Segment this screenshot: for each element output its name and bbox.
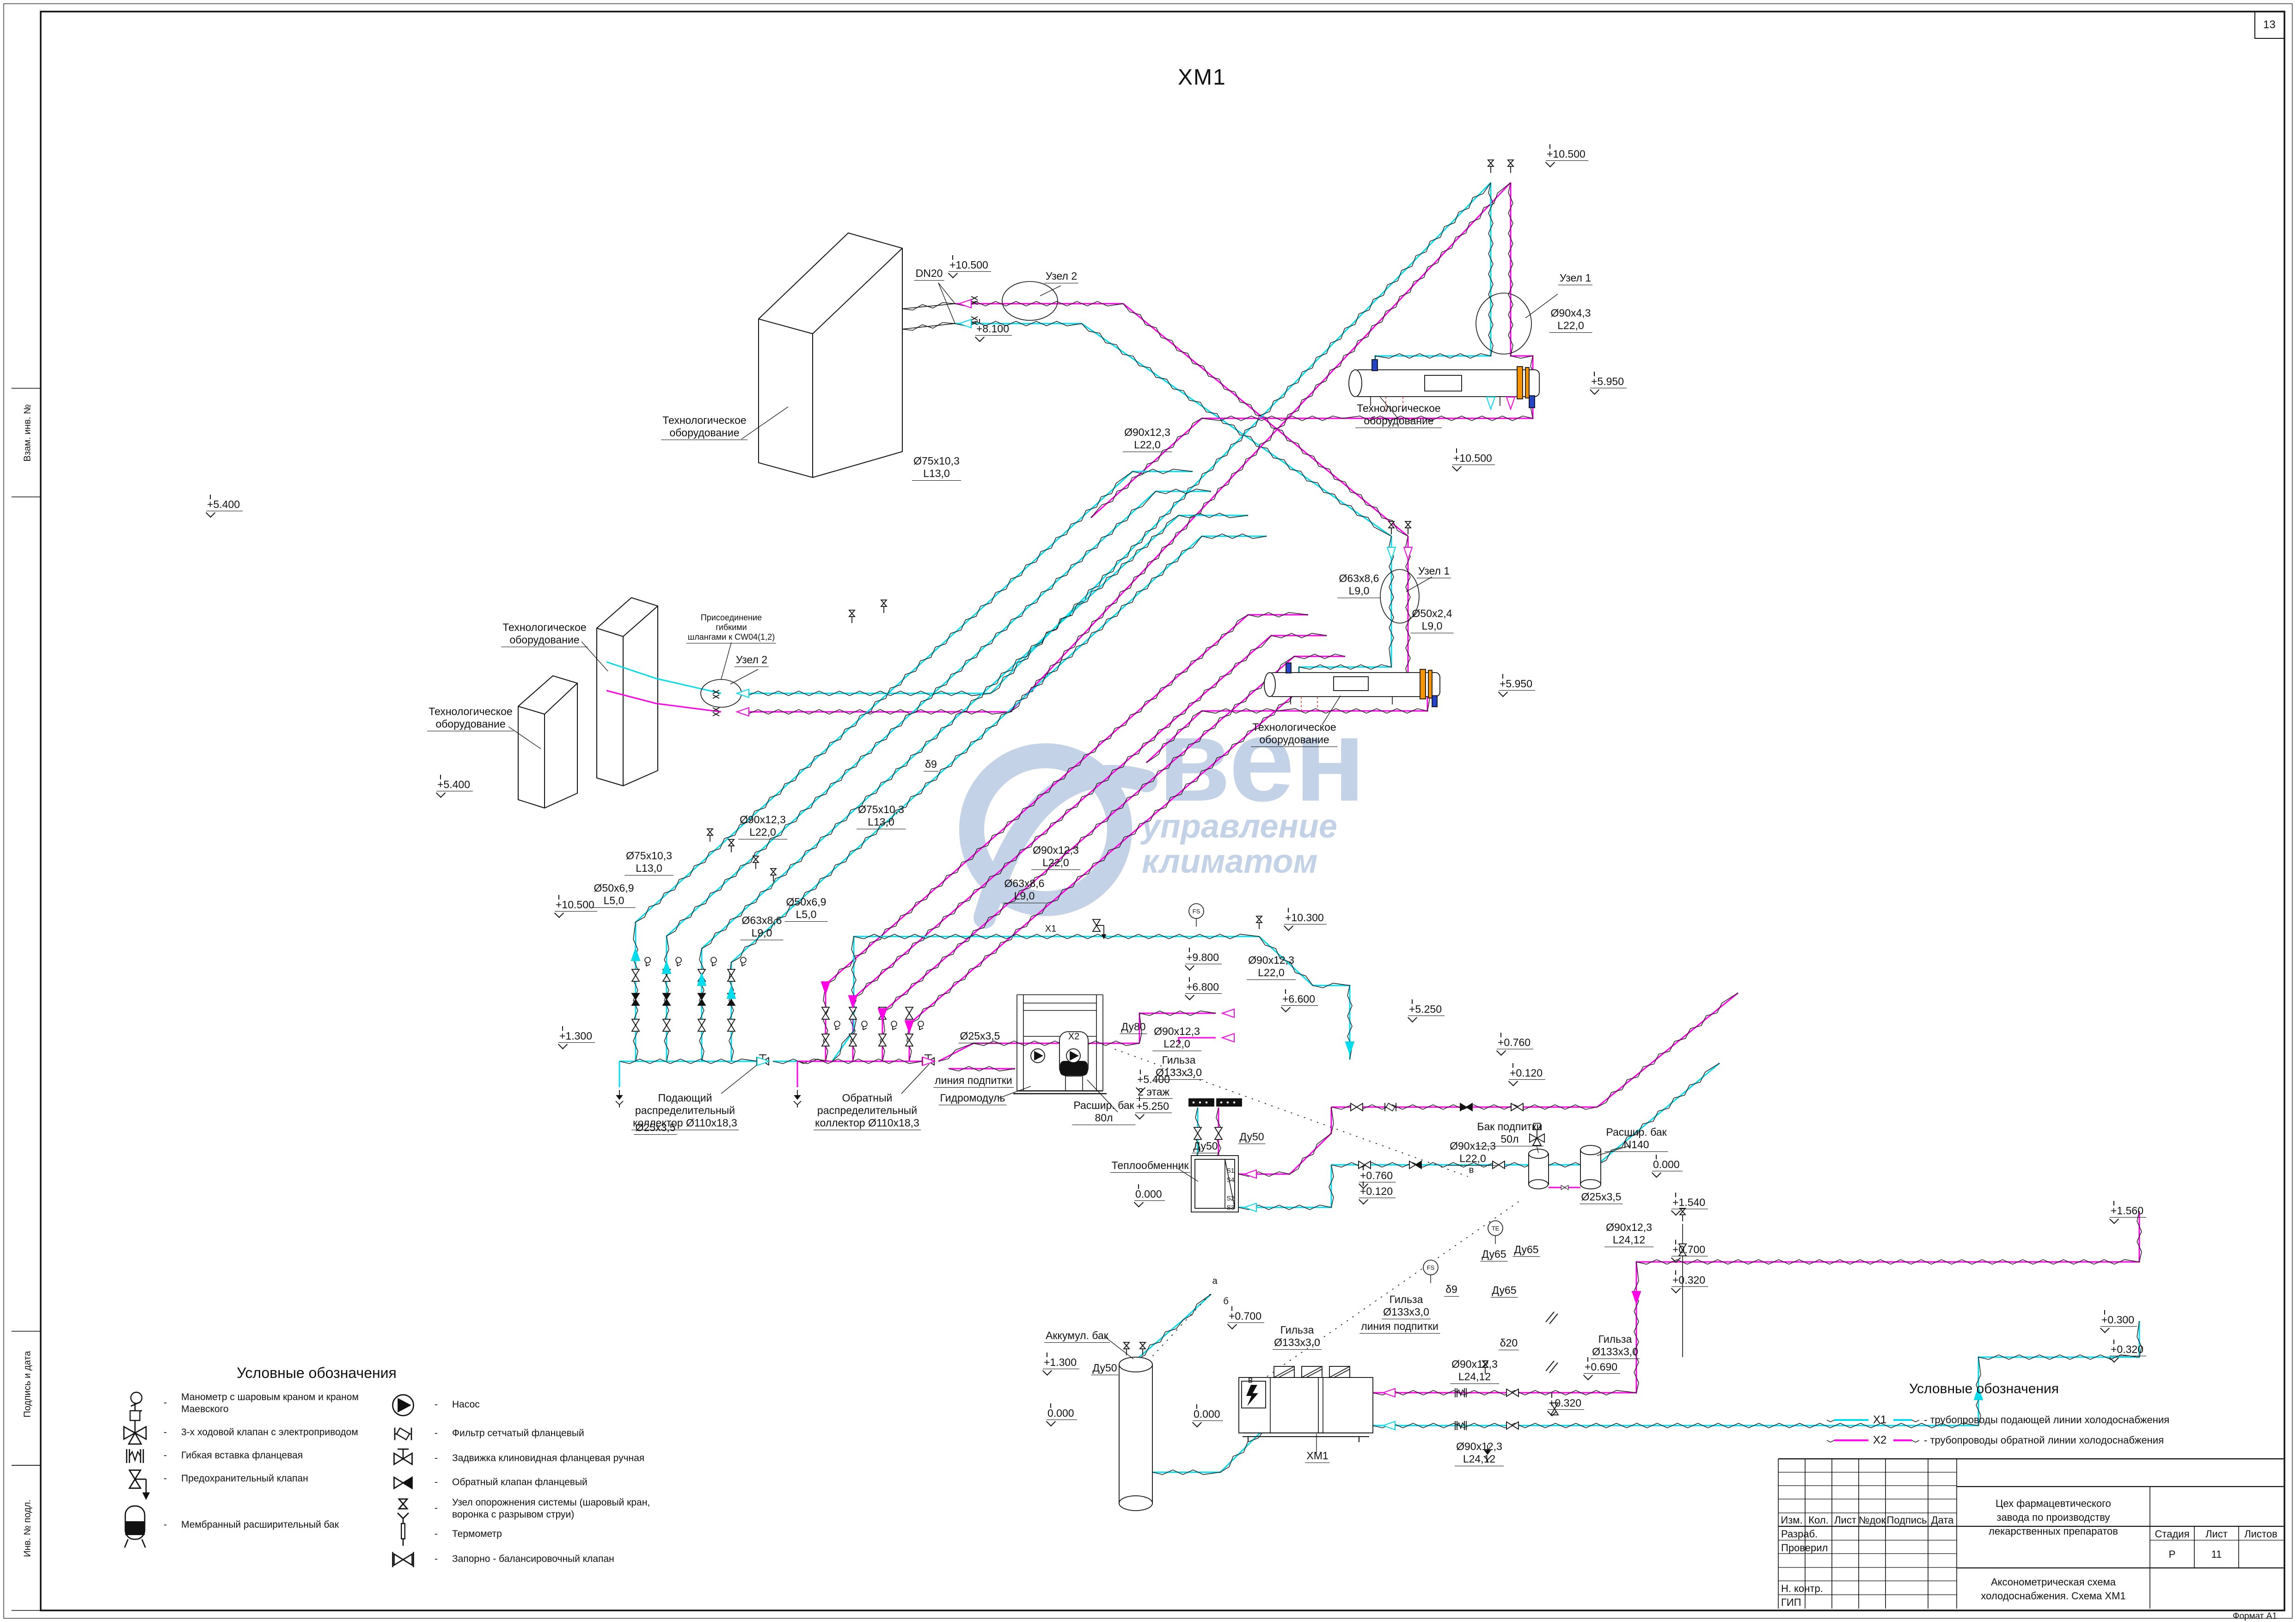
- callout-line: Технологическое: [502, 621, 586, 634]
- tb-project-line: Цех фармацевтического: [1996, 1498, 2111, 1510]
- callout-label: Гидромодуль: [939, 1092, 1007, 1105]
- legend-item-line: Обратный клапан фланцевый: [452, 1476, 588, 1488]
- elevation-mark: +0.300: [2100, 1314, 2137, 1327]
- callout-line: гибкими: [688, 623, 775, 632]
- pump-symbol: [393, 1395, 414, 1416]
- flex-symbol: [127, 1449, 143, 1463]
- elevation-mark: +0.760: [1359, 1169, 1396, 1182]
- callout-line: N140: [1606, 1138, 1666, 1151]
- tb-doc-line: холодоснабжения. Схема ХМ1: [1981, 1590, 2125, 1602]
- legend-item-line: Предохранительный клапан: [181, 1473, 308, 1485]
- elevation-mark: +0.320: [1548, 1397, 1584, 1410]
- callout-line: Подающий: [633, 1092, 737, 1104]
- legend-item-label: Обратный клапан фланцевый: [452, 1476, 588, 1488]
- legend-left-title: Условные обозначения: [237, 1365, 397, 1382]
- legend-item-line: Мембранный расширительный бак: [181, 1519, 339, 1531]
- callout-label: Подающийраспределительныйколлектор Ø110x…: [631, 1092, 739, 1130]
- gate-symbol: [394, 1449, 412, 1464]
- elevation-mark: +5.950: [1590, 375, 1627, 388]
- callout-label: Бак подпитки50л: [1476, 1120, 1543, 1146]
- callout-line: Бак подпитки: [1477, 1120, 1542, 1133]
- callout-line: Ø25x3,5: [1581, 1191, 1622, 1203]
- callout-line: Гильза: [1592, 1333, 1638, 1346]
- filter-symbol: [395, 1428, 411, 1440]
- callout-line: Узел 1: [1418, 565, 1450, 577]
- elevation-mark: +10.300: [1284, 912, 1327, 924]
- legend-right-title: Условные обозначения: [1909, 1381, 2059, 1397]
- callout-label: Ø90x12,3L22,0: [738, 814, 787, 839]
- legend-dash: -: [164, 1397, 167, 1409]
- thermo-symbol: [401, 1524, 405, 1546]
- callout-line: 80л: [1073, 1112, 1134, 1124]
- callout-line: δ9: [925, 758, 937, 771]
- callout-line: оборудование: [429, 718, 512, 730]
- callout-line: Ду50: [1193, 1140, 1218, 1152]
- callout-label: Ду65: [1512, 1243, 1540, 1257]
- legend-line-tag: X2: [1873, 1434, 1886, 1447]
- callout-label: Расшир. бакN140: [1604, 1126, 1668, 1152]
- callout-line: L22,0: [1551, 319, 1591, 332]
- legend-item-line: 3-х ходовой клапан с электроприводом: [181, 1426, 358, 1438]
- callout-line: L5,0: [594, 894, 634, 907]
- callout-label: Узел 1: [1417, 565, 1451, 578]
- callout-label: Ø25x3,5: [1580, 1191, 1623, 1204]
- callout-label: Технологическоеоборудование: [427, 705, 514, 731]
- pipe-tag: в: [1248, 1375, 1253, 1386]
- legend-line-tag: X1: [1873, 1414, 1886, 1426]
- legend-item-line: Насос: [452, 1399, 480, 1411]
- tb-stage-value: Р: [2169, 1549, 2176, 1561]
- callout-line: δ20: [1500, 1337, 1518, 1349]
- elevation-mark: +5.250: [1408, 1003, 1445, 1016]
- legend-item-label: Фильтр сетчатый фланцевый: [452, 1427, 584, 1439]
- callout-line: оборудование: [1252, 734, 1336, 746]
- tb-col-header: Кол.: [1808, 1514, 1829, 1526]
- callout-line: Ø50x6,9: [786, 896, 827, 908]
- tb-stage-label: Стадия: [2155, 1528, 2190, 1540]
- callout-label: Ø90x4,3L22,0: [1549, 307, 1592, 333]
- legend-item-line: Манометр с шаровым краном и краном: [181, 1391, 359, 1403]
- format-note: Формат А1: [2233, 1611, 2277, 1622]
- callout-line: Ø90x12,3: [1248, 954, 1294, 967]
- callout-line: Узел 2: [736, 654, 767, 666]
- callout-line: распределительный: [815, 1104, 919, 1117]
- bal-symbol: [393, 1552, 414, 1567]
- port-tag: S4: [1226, 1176, 1234, 1183]
- legend-dash: -: [435, 1427, 438, 1439]
- legend-dash: -: [435, 1502, 438, 1514]
- elevation-mark: +0.120: [1509, 1067, 1545, 1080]
- callout-label: линия подпитки: [1359, 1320, 1440, 1334]
- 3way-symbol: [124, 1411, 146, 1444]
- callout-label: δ9: [924, 758, 938, 771]
- callout-line: DN20: [916, 267, 943, 280]
- callout-line: оборудование: [1357, 415, 1440, 427]
- callout-line: коллектор Ø110x18,3: [633, 1117, 737, 1129]
- callout-label: Ду50: [1192, 1140, 1219, 1153]
- elevation-mark: 0.000: [1047, 1407, 1077, 1420]
- callout-line: L9,0: [742, 927, 782, 939]
- tb-doc-line: Аксонометрическая схема: [1991, 1576, 2116, 1588]
- legend-item-label: Узел опорожнения системы (шаровый кран,в…: [452, 1497, 650, 1521]
- callout-label: Ø90x12,3L22,0: [1247, 954, 1296, 980]
- callout-line: оборудование: [502, 634, 586, 646]
- elevation-mark: +8.100: [975, 323, 1012, 336]
- tb-row-label: ГИП: [1781, 1597, 1801, 1609]
- callout-label: Ø90x12,3L22,0: [1123, 426, 1172, 452]
- legend-item-label: Гибкая вставка фланцевая: [181, 1450, 303, 1462]
- pipe-tag: X2: [1068, 1032, 1079, 1042]
- callout-line: оборудование: [662, 427, 746, 439]
- memtank-symbol: [125, 1506, 146, 1548]
- drawing-sheet: венуправлениеклиматом FSTEFS ХМ1 13 Форм…: [0, 0, 2296, 1622]
- callout-line: Технологическое: [429, 705, 512, 718]
- callout-line: Гильза: [1156, 1054, 1202, 1066]
- callout-line: L9,0: [1339, 585, 1379, 597]
- callout-label: Ду80: [1120, 1021, 1147, 1034]
- callout-line: ХМ1: [1306, 1450, 1328, 1462]
- legend-item-line: Термометр: [452, 1528, 502, 1540]
- callout-line: шлангами к CW04(1,2): [688, 632, 775, 642]
- callout-label: Технологическоеоборудование: [501, 621, 588, 647]
- tb-row-label: Н. контр.: [1781, 1583, 1823, 1595]
- elevation-mark: +5.4002 этаж: [1136, 1073, 1173, 1099]
- callout-label: ГильзаØ133x3,0: [1382, 1293, 1431, 1319]
- elevation-mark: +1.540: [1671, 1196, 1708, 1209]
- legend-item-line: Маевского: [181, 1403, 359, 1415]
- callout-label: Узел 2: [735, 654, 769, 667]
- callout-label: ГильзаØ133x3,0: [1273, 1324, 1322, 1350]
- tb-sheet-value: 11: [2211, 1549, 2222, 1561]
- elevation-mark: +6.600: [1281, 993, 1318, 1006]
- elevation-mark: +5.950: [1499, 678, 1535, 691]
- callout-line: L13,0: [626, 862, 672, 875]
- callout-line: Ø75x10,3: [913, 455, 960, 467]
- callout-line: L9,0: [1004, 890, 1045, 902]
- callout-label: Расшир. бак80л: [1072, 1099, 1135, 1125]
- side-strip-label: Инв. № подл.: [23, 1530, 33, 1557]
- callout-line: L24,12: [1451, 1371, 1498, 1383]
- drainunit-symbol: [398, 1499, 409, 1524]
- legend-item-label: Предохранительный клапан: [181, 1473, 308, 1485]
- callout-line: L22,0: [1450, 1152, 1496, 1165]
- callout-line: L22,0: [1248, 967, 1294, 979]
- page-title: ХМ1: [1178, 65, 1226, 90]
- callout-line: Ø25x3,5: [960, 1030, 1000, 1042]
- legend-line-label: - трубопроводы подающей линии холодоснаб…: [1924, 1414, 2169, 1426]
- callout-label: Ø25x3,5: [959, 1030, 1002, 1043]
- pipe-tag: а: [1212, 1276, 1217, 1287]
- pipe-tag: б: [1223, 1297, 1228, 1307]
- callout-label: Технологическоеоборудование: [1355, 402, 1442, 428]
- callout-line: Ø133x3,0: [1383, 1306, 1429, 1318]
- callout-line: Присоединение: [688, 613, 775, 623]
- tb-project-line: лекарственных препаратов: [1989, 1525, 2118, 1537]
- legend-item-line: Запорно - балансировочный клапан: [452, 1553, 614, 1565]
- port-tag: S2: [1226, 1194, 1234, 1202]
- callout-line: Ду65: [1492, 1284, 1516, 1297]
- callout-label: Ду65: [1480, 1248, 1507, 1261]
- legend-item-line: Задвижка клиновидная фланцевая ручная: [452, 1452, 644, 1464]
- legend-item-line: Гибкая вставка фланцевая: [181, 1450, 303, 1462]
- callout-line: Ду65: [1514, 1243, 1538, 1256]
- callout-label: Присоединениегибкимишлангами к CW04(1,2): [686, 613, 776, 643]
- callout-line: Технологическое: [1357, 402, 1440, 415]
- legend-item-label: Мембранный расширительный бак: [181, 1519, 339, 1531]
- elevation-mark: +0.120: [1359, 1185, 1396, 1198]
- side-strip-label: Взам. инв. №: [23, 434, 33, 462]
- elevation-mark: +0.760: [1497, 1036, 1533, 1049]
- callout-line: L22,0: [1124, 439, 1170, 451]
- elevation-mark: +10.500: [1452, 452, 1495, 465]
- callout-line: Ø133x3,0: [1274, 1336, 1320, 1349]
- callout-label: Ø75x10,3L13,0: [625, 850, 673, 875]
- elevation-mark: +1.300: [558, 1030, 595, 1043]
- tb-col-header: Подпись: [1886, 1514, 1927, 1526]
- legend-dash: -: [164, 1450, 167, 1462]
- side-strip-label: Подпись и дата: [23, 1390, 33, 1418]
- callout-label: Технологическоеоборудование: [1251, 721, 1337, 747]
- legend-dash: -: [435, 1476, 438, 1488]
- callout-label: Ø50x6,9L5,0: [785, 896, 828, 922]
- elevation-mark: +1.560: [2110, 1205, 2146, 1218]
- legend-dash: -: [435, 1452, 438, 1464]
- callout-line: линия подпитки: [1361, 1320, 1439, 1333]
- tb-col-header: Изм.: [1781, 1514, 1802, 1526]
- callout-line: Ø90x12,3: [1124, 426, 1170, 439]
- elevation-mark: +0.320: [2110, 1343, 2146, 1356]
- callout-label: Ду50: [1091, 1362, 1118, 1375]
- legend-item-label: Запорно - балансировочный клапан: [452, 1553, 614, 1565]
- elevation-mark: +5.400: [206, 498, 243, 511]
- callout-label: Технологическоеоборудование: [661, 414, 747, 440]
- callout-line: Гильза: [1383, 1293, 1429, 1306]
- callout-line: Расшир. бак: [1606, 1126, 1666, 1138]
- callout-line: Гидромодуль: [940, 1092, 1005, 1104]
- callout-label: Ø63x8,6L9,0: [741, 914, 784, 940]
- legend-dash: -: [435, 1553, 438, 1565]
- callout-line: Ø63x8,6: [1004, 877, 1045, 890]
- callout-line: Ø90x12,3: [1451, 1358, 1498, 1371]
- callout-label: Теплообменник: [1110, 1159, 1190, 1173]
- callout-line: распределительный: [633, 1104, 737, 1117]
- callout-label: Ø90x12,3L24,12: [1455, 1440, 1504, 1466]
- callout-label: Ду50: [1238, 1131, 1265, 1144]
- check-symbol: [394, 1477, 412, 1488]
- tb-row-label: Разраб.: [1781, 1528, 1818, 1540]
- safety-symbol: [129, 1470, 149, 1499]
- callout-line: Ду50: [1239, 1131, 1264, 1143]
- legend-item-label: Насос: [452, 1399, 480, 1411]
- callout-line: Аккумул. бак: [1046, 1329, 1108, 1342]
- callout-label: линия подпитки: [933, 1074, 1014, 1088]
- tb-col-header: №док: [1859, 1514, 1886, 1526]
- callout-line: δ9: [1445, 1283, 1457, 1296]
- port-tag: S3: [1226, 1204, 1234, 1211]
- callout-label: Узел 2: [1044, 270, 1078, 283]
- callout-line: Узел 1: [1560, 272, 1591, 284]
- callout-line: коллектор Ø110x18,3: [815, 1117, 919, 1129]
- callout-line: Ø133x3,0: [1592, 1346, 1638, 1358]
- callout-line: L13,0: [913, 467, 960, 480]
- callout-line: Ø75x10,3: [858, 803, 904, 816]
- elevation-mark: +10.500: [555, 899, 597, 912]
- callout-label: ГильзаØ133x3,0: [1591, 1333, 1640, 1359]
- callout-line: Ø90x12,3: [1033, 844, 1079, 857]
- callout-line: Ду80: [1121, 1021, 1145, 1033]
- callout-line: Ø90x4,3: [1551, 307, 1591, 319]
- callout-line: Ø50x2,4: [1412, 607, 1452, 620]
- callout-label: DN20: [914, 267, 944, 281]
- callout-line: 50л: [1477, 1133, 1542, 1145]
- callout-label: Ду65: [1490, 1284, 1518, 1298]
- callout-line: L22,0: [1154, 1038, 1200, 1050]
- legend-item-label: Термометр: [452, 1528, 502, 1540]
- legend-dash: -: [164, 1426, 167, 1438]
- sheet-number: 13: [2263, 18, 2276, 31]
- tb-col-header: Лист: [1834, 1514, 1856, 1526]
- elevation-mark: +0.320: [1671, 1274, 1708, 1287]
- callout-label: Ø50x2,4L9,0: [1411, 607, 1454, 633]
- legend-item-line: Узел опорожнения системы (шаровый кран,: [452, 1497, 650, 1509]
- callout-line: L13,0: [858, 816, 904, 828]
- elevation-mark: 0.000: [1652, 1158, 1683, 1171]
- callout-label: δ20: [1499, 1337, 1519, 1350]
- pipe-tag: X1: [1045, 924, 1056, 935]
- callout-label: Ø75x10,3L13,0: [912, 455, 961, 481]
- callout-label: Ø63x8,6L9,0: [1003, 877, 1046, 903]
- elevation-mark: 0.000: [1193, 1408, 1223, 1421]
- callout-label: Ø75x10,3L13,0: [857, 803, 906, 829]
- elevation-mark: +0.700: [1228, 1310, 1264, 1323]
- legend-dash: -: [435, 1399, 438, 1411]
- callout-line: L22,0: [740, 826, 786, 839]
- tb-row-label: Проверил: [1781, 1542, 1828, 1554]
- callout-line: Узел 2: [1046, 270, 1077, 282]
- callout-line: L9,0: [1412, 620, 1452, 632]
- callout-line: Ø50x6,9: [594, 882, 634, 894]
- callout-line: Ду50: [1092, 1362, 1117, 1374]
- callout-line: Ø90x12,3: [1154, 1025, 1200, 1038]
- callout-label: Ø63x8,6L9,0: [1338, 572, 1381, 598]
- callout-line: Ø63x8,6: [742, 914, 782, 927]
- callout-label: Ø50x6,9L5,0: [593, 882, 636, 908]
- legend-dash: -: [164, 1473, 167, 1485]
- legend-item-label: Манометр с шаровым краном и краномМаевск…: [181, 1391, 359, 1416]
- callout-line: линия подпитки: [935, 1074, 1012, 1087]
- tb-sheet-label: Лист: [2205, 1528, 2228, 1540]
- elevation-mark: +10.500: [1546, 148, 1588, 161]
- callout-label: Аккумул. бак: [1044, 1329, 1110, 1343]
- tb-sheets-label: Листов: [2244, 1528, 2277, 1540]
- callout-label: δ9: [1444, 1283, 1459, 1297]
- elevation-mark: +0.690: [1584, 1361, 1620, 1374]
- tb-col-header: Дата: [1931, 1514, 1954, 1526]
- elevation-mark: +1.300: [1043, 1356, 1079, 1369]
- elevation-mark: +5.250: [1135, 1100, 1172, 1113]
- callout-line: L24,12: [1606, 1234, 1652, 1246]
- callout-label: Ø90x12,3L22,0: [1031, 844, 1080, 870]
- callout-line: Ø63x8,6: [1339, 572, 1379, 585]
- callout-line: Гильза: [1274, 1324, 1320, 1336]
- callout-label: Узел 1: [1558, 272, 1592, 285]
- callout-line: L24,12: [1456, 1453, 1502, 1465]
- callout-label: Обратныйраспределительныйколлектор Ø110x…: [814, 1092, 921, 1130]
- callout-line: Обратный: [815, 1092, 919, 1104]
- legend-dash: -: [435, 1528, 438, 1540]
- callout-line: Технологическое: [1252, 721, 1336, 734]
- elevation-mark: +9.800: [1185, 951, 1222, 964]
- legend-line-label: - трубопроводы обратной линии холодоснаб…: [1924, 1434, 2164, 1446]
- legend-item-label: Задвижка клиновидная фланцевая ручная: [452, 1452, 644, 1464]
- callout-line: Ø90x12,3: [1606, 1221, 1652, 1234]
- elevation-mark: +6.800: [1185, 981, 1222, 994]
- callout-line: Технологическое: [662, 414, 746, 427]
- elevation-mark: 0.000: [1134, 1188, 1165, 1201]
- tb-project-line: завода по производству: [1996, 1512, 2110, 1524]
- callout-line: Ø90x12,3: [1456, 1440, 1502, 1453]
- elevation-mark: +0.700: [1671, 1243, 1708, 1256]
- port-tag: S1: [1226, 1167, 1234, 1174]
- legend-item-line: воронка с разрывом струи): [452, 1509, 650, 1521]
- legend-dash: -: [164, 1519, 167, 1531]
- elevation-mark: +5.400: [436, 778, 473, 791]
- callout-line: Ø90x12,3: [740, 814, 786, 826]
- callout-label: Ø90x12,3L22,0: [1152, 1025, 1201, 1051]
- legend-item-line: Фильтр сетчатый фланцевый: [452, 1427, 584, 1439]
- callout-label: ХМ1: [1305, 1450, 1329, 1463]
- callout-line: Теплообменник: [1112, 1159, 1189, 1172]
- pipe-tag: в: [1469, 1165, 1474, 1176]
- callout-line: Расшир. бак: [1073, 1099, 1134, 1112]
- callout-line: Ø75x10,3: [626, 850, 672, 862]
- callout-label: Ø90x12,3L24,12: [1604, 1221, 1653, 1247]
- callout-line: L22,0: [1033, 857, 1079, 869]
- elevation-mark: +10.500: [949, 259, 991, 272]
- legend-item-label: 3-х ходовой клапан с электроприводом: [181, 1426, 358, 1438]
- callout-line: L5,0: [786, 908, 827, 921]
- callout-line: Ду65: [1482, 1248, 1506, 1261]
- callout-label: Ø90x12,3L24,12: [1450, 1358, 1499, 1384]
